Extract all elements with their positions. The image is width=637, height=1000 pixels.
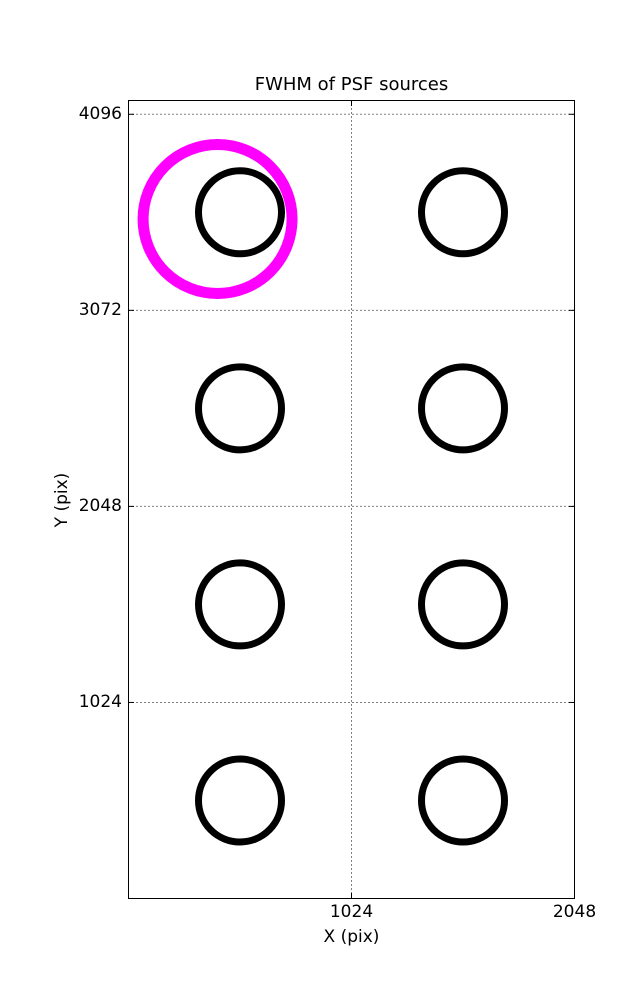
y-tick-label: 4096 — [30, 105, 122, 124]
x-axis-label: X (pix) — [128, 927, 575, 947]
y-tick-label: 1024 — [30, 693, 122, 712]
psf-source-fwhm-markers — [199, 171, 282, 254]
y-tick-label: 2048 — [30, 497, 122, 516]
psf-source-fwhm-markers — [422, 367, 505, 450]
x-tick-label: 2048 — [553, 903, 596, 922]
psf-source-fwhm-markers — [199, 563, 282, 646]
y-tick-label: 3072 — [30, 301, 122, 320]
psf-source-fwhm-markers — [199, 759, 282, 842]
psf-source-fwhm-markers — [422, 563, 505, 646]
chart-title: FWHM of PSF sources — [128, 74, 575, 96]
axes-spines — [129, 101, 575, 899]
psf-source-fwhm-markers — [422, 171, 505, 254]
psf-source-fwhm-markers — [199, 367, 282, 450]
psf-source-fwhm-markers — [422, 759, 505, 842]
figure-canvas: FWHM of PSF sources X (pix) Y (pix) 1024… — [0, 0, 637, 1000]
highlighted-source-marker — [143, 145, 292, 294]
x-tick-label: 1024 — [330, 903, 373, 922]
